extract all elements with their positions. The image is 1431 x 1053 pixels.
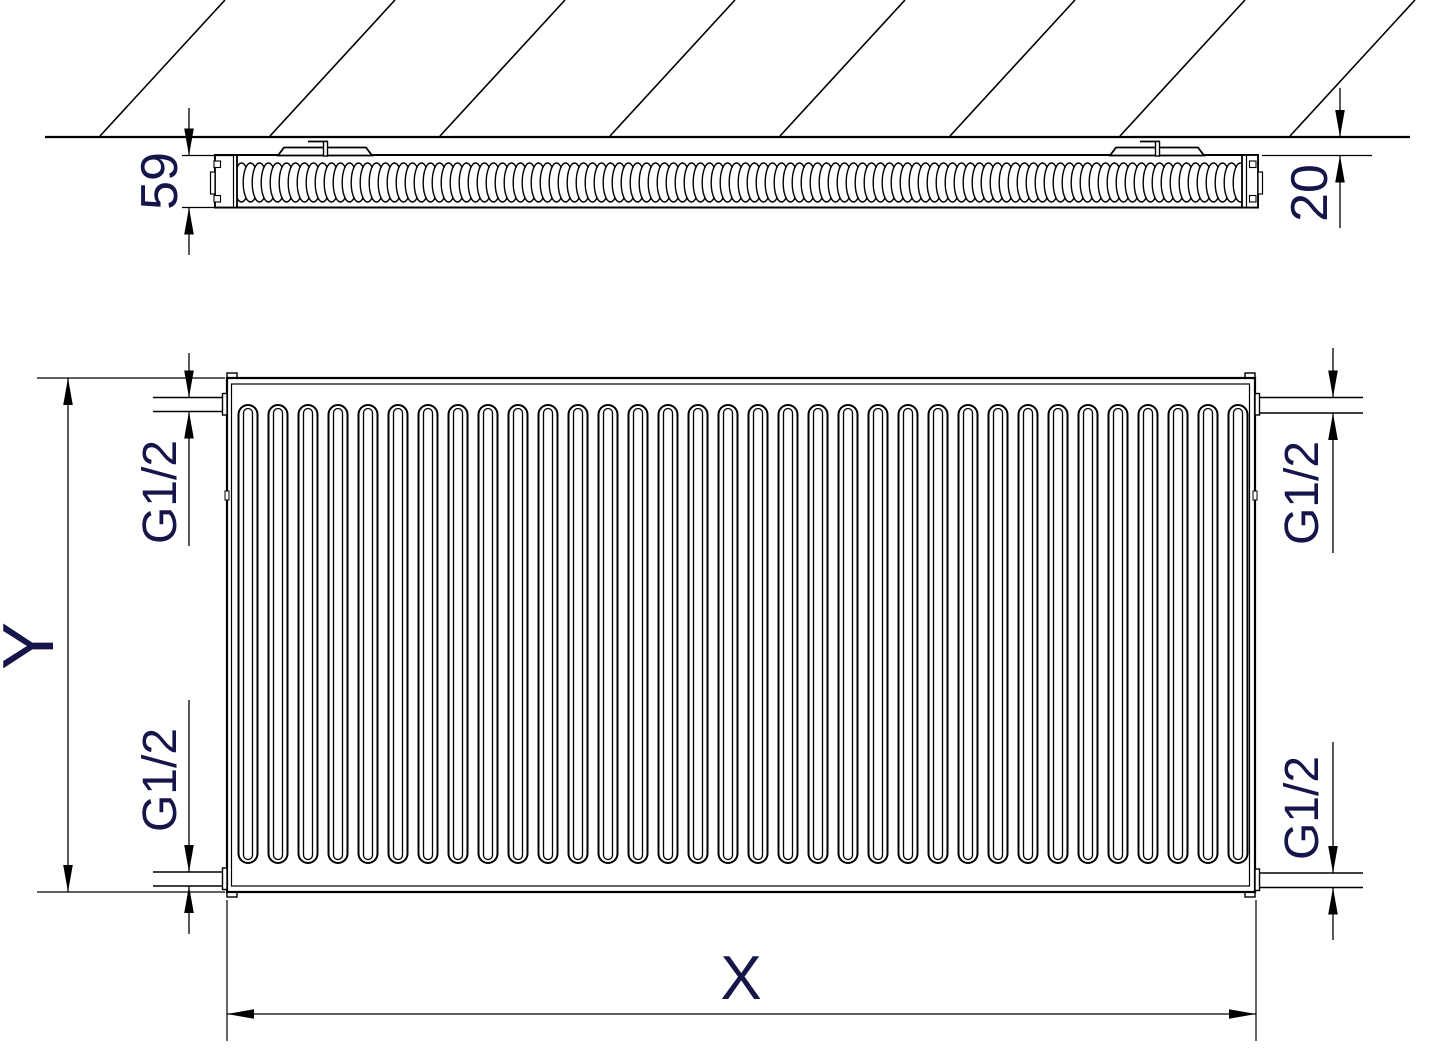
radiator-section: [211, 142, 1263, 208]
dimension-width-x: X: [227, 900, 1256, 1041]
thread-label-top-left: G1/2: [134, 440, 187, 544]
arrowhead: [184, 208, 194, 235]
arrowhead: [184, 412, 194, 439]
radiator-front-panel: [225, 373, 1258, 897]
thread-label-bottom-right: G1/2: [1276, 756, 1329, 860]
arrowhead: [63, 378, 73, 405]
connection-stub-bottom-right: [1255, 869, 1363, 891]
arrowhead: [184, 371, 194, 398]
arrowhead: [1229, 1009, 1256, 1019]
arrowhead: [1328, 888, 1338, 915]
dim-label-depth: 59: [131, 152, 189, 210]
end-cap-right: [1242, 155, 1263, 208]
arrowhead: [1328, 413, 1338, 440]
convector-coil: [237, 162, 1242, 203]
connection-stub-top-right: [1255, 394, 1363, 416]
arrowhead: [227, 1009, 254, 1019]
radiator-technical-drawing: 59 20: [0, 0, 1431, 1053]
wall-hatching: [100, 0, 1415, 136]
dimension-thread-bottom-left: G1/2: [134, 700, 194, 934]
end-cap-left: [211, 155, 238, 208]
connection-stub-bottom-left: [153, 868, 227, 890]
connection-stub-top-left: [153, 394, 227, 416]
arrowhead: [184, 886, 194, 913]
front-fins: [238, 404, 1258, 867]
front-view: G1/2 G1/2 G1/2 G1/2: [0, 348, 1363, 1041]
thread-label-bottom-left: G1/2: [134, 728, 187, 832]
dimension-thread-top-left: G1/2: [134, 353, 194, 546]
arrowhead: [63, 865, 73, 892]
arrowhead: [184, 845, 194, 872]
arrowhead: [1328, 371, 1338, 398]
thread-label-top-right: G1/2: [1276, 441, 1329, 545]
arrowhead: [1335, 110, 1345, 137]
dim-label-wall-distance: 20: [1281, 164, 1339, 222]
dimension-wall-gap-20: 20: [1262, 88, 1372, 228]
arrowhead: [1328, 846, 1338, 873]
dimension-thread-top-right: G1/2: [1276, 348, 1338, 553]
top-view: 59 20: [45, 0, 1415, 255]
dim-label-width: X: [720, 944, 761, 1013]
arrowhead: [184, 129, 194, 156]
dim-label-height: Y: [0, 622, 69, 670]
wall-bracket-left: [278, 142, 372, 157]
dimension-height-y: Y: [0, 378, 225, 892]
dimension-thread-bottom-right: G1/2: [1276, 742, 1338, 940]
wall-bracket-right: [1110, 142, 1204, 157]
drawing-canvas: 59 20: [0, 0, 1431, 1053]
